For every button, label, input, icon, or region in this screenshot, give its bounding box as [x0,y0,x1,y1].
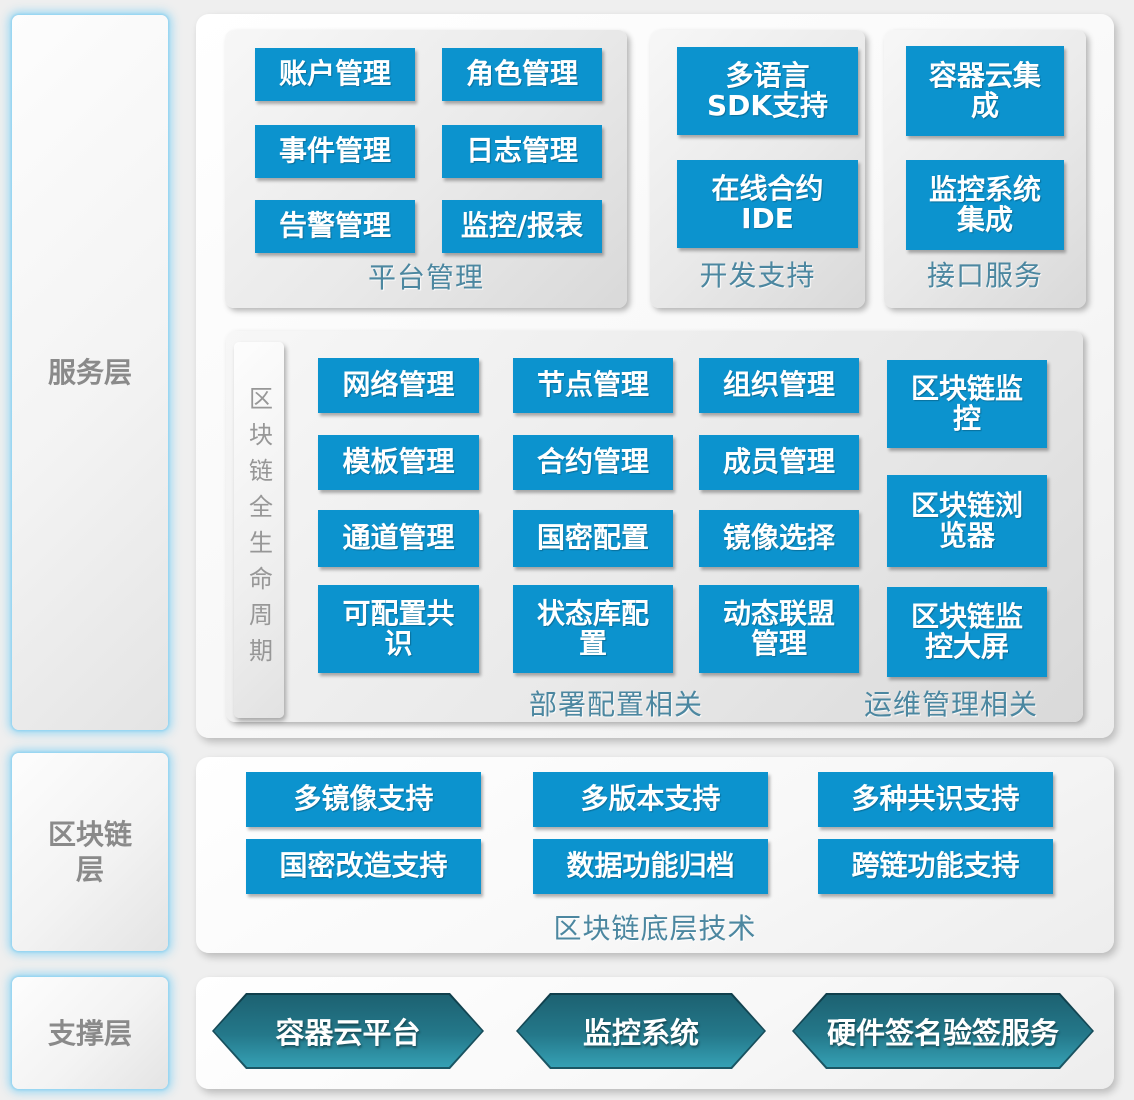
sidebar-layer-support: 支撑层 [12,977,168,1089]
multilang-sdk-box: 多语言 SDK支持 [677,47,858,135]
support-layer-container: 容器云平台 监控系统 硬件签名验签服务 [196,977,1114,1089]
state-db-config-box: 状态库配 置 [513,585,673,673]
cross-chain-box: 跨链功能支持 [818,839,1053,894]
data-archive-box: 数据功能归档 [533,839,768,894]
image-select-box: 镜像选择 [699,510,859,567]
role-mgmt-box: 角色管理 [442,48,602,101]
account-mgmt-box: 账户管理 [255,48,415,101]
multi-image-box: 多镜像支持 [246,772,481,827]
gm-crypto-config-box: 国密配置 [513,510,673,567]
blockchain-dashboard-box: 区块链监 控大屏 [887,587,1047,677]
container-cloud-hexagon-label: 容器云平台 [214,995,482,1067]
architecture-diagram: { "colors":{ "accent_blue":"#0c93ce", "t… [0,0,1134,1100]
monitor-report-box: 监控/报表 [442,200,602,253]
dev-panel-label: 开发支持 [650,254,865,294]
dev-support-panel: 多语言 SDK支持 在线合约 IDE 开发支持 [650,30,865,308]
blockchain-layer-container: 多镜像支持 多版本支持 多种共识支持 国密改造支持 数据功能归档 跨链功能支持 … [196,757,1114,953]
hardware-sign-hexagon: 硬件签名验签服务 [792,993,1094,1069]
member-mgmt-box: 成员管理 [699,435,859,490]
multi-consensus-box: 多种共识支持 [818,772,1053,827]
api-service-panel: 容器云集 成 监控系统 集成 接口服务 [884,30,1086,308]
blockchain-monitor-box: 区块链监 控 [887,360,1047,448]
lifecycle-panel: 区块链全生命周期 网络管理 模板管理 通道管理 可配置共 识 节点管理 合约管理… [226,331,1083,722]
blockchain-explorer-box: 区块链浏 览器 [887,475,1047,567]
gm-retrofit-box: 国密改造支持 [246,839,481,894]
multi-version-box: 多版本支持 [533,772,768,827]
configurable-consensus-box: 可配置共 识 [318,585,479,673]
blockchain-tech-label: 区块链底层技术 [196,907,1114,947]
container-cloud-hexagon: 容器云平台 [212,993,484,1069]
log-mgmt-box: 日志管理 [442,125,602,178]
platform-panel: 账户管理 角色管理 事件管理 日志管理 告警管理 监控/报表 平台管理 [225,30,627,308]
sidebar-layer-service: 服务层 [12,15,168,730]
monitor-integration-box: 监控系统 集成 [906,160,1064,250]
monitor-system-hexagon: 监控系统 [516,993,766,1069]
lifecycle-strip: 区块链全生命周期 [234,342,284,718]
container-cloud-integration-box: 容器云集 成 [906,46,1064,136]
dynamic-consortium-box: 动态联盟 管理 [699,585,859,673]
online-ide-box: 在线合约 IDE [677,160,858,248]
deploy-config-label: 部署配置相关 [496,683,736,723]
service-layer-container: 账户管理 角色管理 事件管理 日志管理 告警管理 监控/报表 平台管理 多语言 … [196,14,1114,738]
channel-mgmt-box: 通道管理 [318,510,479,567]
monitor-system-hexagon-label: 监控系统 [518,995,764,1067]
sidebar-layer-blockchain: 区块链 层 [12,753,168,951]
api-panel-label: 接口服务 [884,254,1086,294]
platform-panel-label: 平台管理 [225,256,627,296]
node-mgmt-box: 节点管理 [513,358,673,413]
event-mgmt-box: 事件管理 [255,125,415,178]
lifecycle-strip-label: 区块链全生命周期 [242,386,277,674]
org-mgmt-box: 组织管理 [699,358,859,413]
ops-mgmt-label: 运维管理相关 [846,683,1056,723]
network-mgmt-box: 网络管理 [318,358,479,413]
contract-mgmt-box: 合约管理 [513,435,673,490]
hardware-sign-hexagon-label: 硬件签名验签服务 [794,995,1092,1067]
alert-mgmt-box: 告警管理 [255,200,415,253]
template-mgmt-box: 模板管理 [318,435,479,490]
